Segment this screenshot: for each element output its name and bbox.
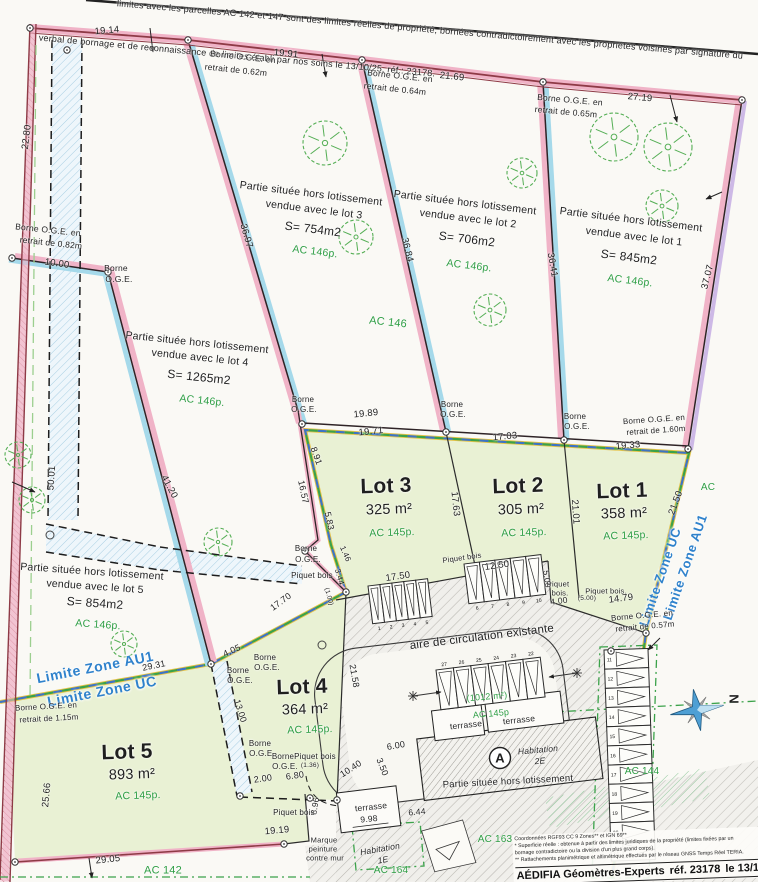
- borne-marker-icon: [443, 429, 449, 435]
- borne-marker-icon: [608, 648, 614, 654]
- stall-number: 10: [536, 598, 542, 605]
- tree-icon: [474, 294, 506, 326]
- stall-number: 17: [611, 772, 617, 778]
- stall-number: 23: [511, 653, 517, 660]
- firm-name: AÉDIFIA Géomètres-Experts: [516, 865, 664, 882]
- north-compass: [667, 685, 727, 736]
- tree-icon: [644, 123, 692, 171]
- tree-icon: [339, 220, 373, 254]
- plan-ref: réf. 23178: [669, 863, 720, 877]
- tree-icon: [646, 190, 678, 222]
- stall-number: 26: [458, 659, 464, 666]
- hatched-band: [48, 40, 82, 520]
- borne-marker-icon: [643, 630, 649, 636]
- borne-marker-icon: [540, 79, 546, 85]
- borne-marker-icon: [739, 97, 745, 103]
- borne-marker-icon: [334, 797, 340, 803]
- borne-marker-icon: [302, 548, 308, 554]
- tree-icon: [507, 158, 537, 188]
- tree-icon: [204, 528, 232, 556]
- borne-marker-icon: [307, 795, 313, 801]
- borne-marker-icon: [12, 859, 18, 865]
- leader-arrow-icon: [706, 192, 722, 199]
- footer-block: Coordonnées RGF93 CC 9 Zones** et IGN 69…: [512, 827, 758, 882]
- tree-icon: [303, 121, 347, 165]
- borne-marker-icon: [359, 57, 365, 63]
- borne-marker-icon: [27, 25, 33, 31]
- borne-marker-icon: [299, 421, 305, 427]
- building-letter-circle: [490, 748, 511, 769]
- borne-marker-icon: [281, 841, 287, 847]
- stall-number: 25: [476, 657, 482, 664]
- stall-number: 24: [493, 655, 499, 662]
- borne-marker-icon: [685, 446, 691, 452]
- stall-number: 16: [610, 753, 616, 759]
- survey-plan-page: 12345 678910 272625242322 11121314151617…: [0, 0, 758, 882]
- leader-arrow-icon: [89, 858, 92, 878]
- stall-number: 27: [441, 662, 447, 669]
- borne-marker-icon: [64, 47, 70, 53]
- borne-marker-icon: [343, 589, 349, 595]
- borne-marker-icon: [561, 437, 567, 443]
- borne-marker-icon: [9, 255, 15, 261]
- borne-marker-icon: [185, 37, 191, 43]
- stall-number: 11: [607, 657, 613, 663]
- stall-number: 14: [609, 715, 615, 721]
- stall-number: 15: [609, 734, 615, 740]
- parking-column-11-21: 1112131415161718192021: [604, 648, 655, 861]
- plan-date: le 13/10/2025: [725, 860, 758, 874]
- borne-marker-icon: [105, 269, 111, 275]
- stall-number: 13: [608, 696, 614, 702]
- leader-arrow-icon: [648, 638, 660, 650]
- stall-number: 18: [611, 792, 617, 798]
- plan-svg: 12345 678910 272625242322 11121314151617…: [0, 0, 758, 882]
- borne-marker-icon: [208, 661, 214, 667]
- stall-number: 22: [528, 651, 534, 658]
- tree-icon: [111, 631, 137, 657]
- stall-number: 19: [612, 811, 618, 817]
- tree-icon: [590, 113, 638, 161]
- stall-number: 12: [607, 676, 613, 682]
- borne-marker-icon: [237, 793, 243, 799]
